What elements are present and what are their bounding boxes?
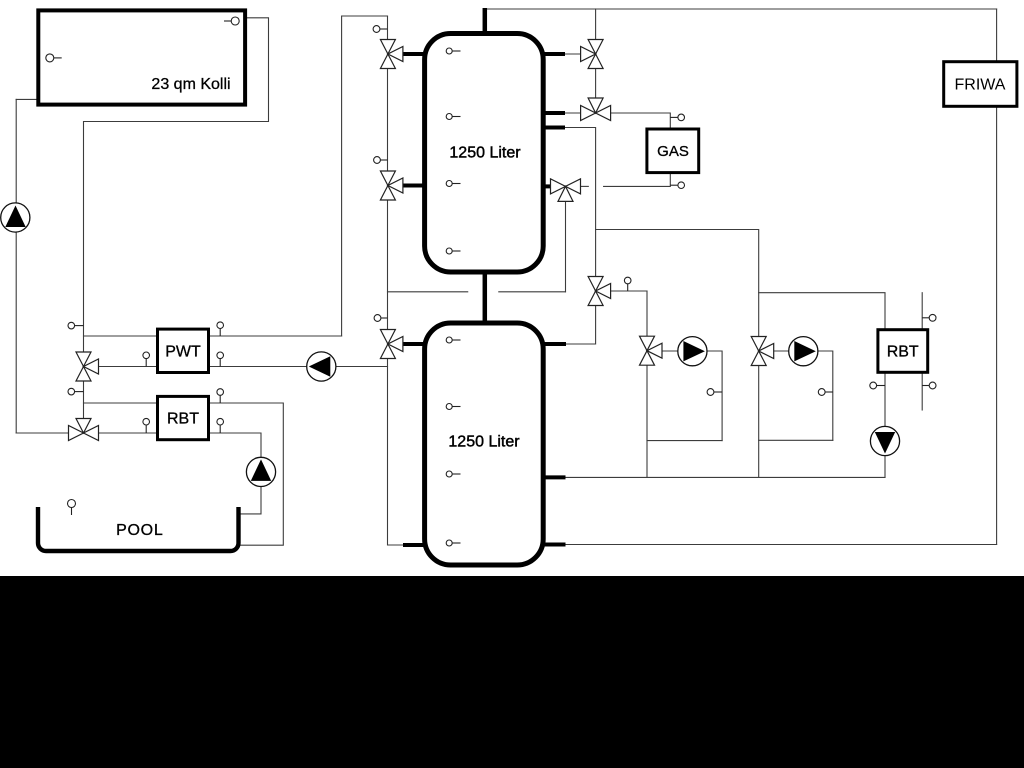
svg-text:FRIWA: FRIWA: [955, 76, 1006, 93]
svg-text:1250 Liter: 1250 Liter: [449, 145, 521, 162]
svg-text:23 qm Kolli: 23 qm Kolli: [151, 76, 230, 93]
svg-text:RBT: RBT: [887, 344, 919, 361]
svg-text:POOL: POOL: [116, 522, 163, 539]
svg-text:1250 Liter: 1250 Liter: [448, 434, 520, 451]
svg-text:RBT: RBT: [167, 410, 199, 427]
svg-text:PWT: PWT: [165, 343, 201, 360]
svg-text:GAS: GAS: [657, 143, 689, 160]
